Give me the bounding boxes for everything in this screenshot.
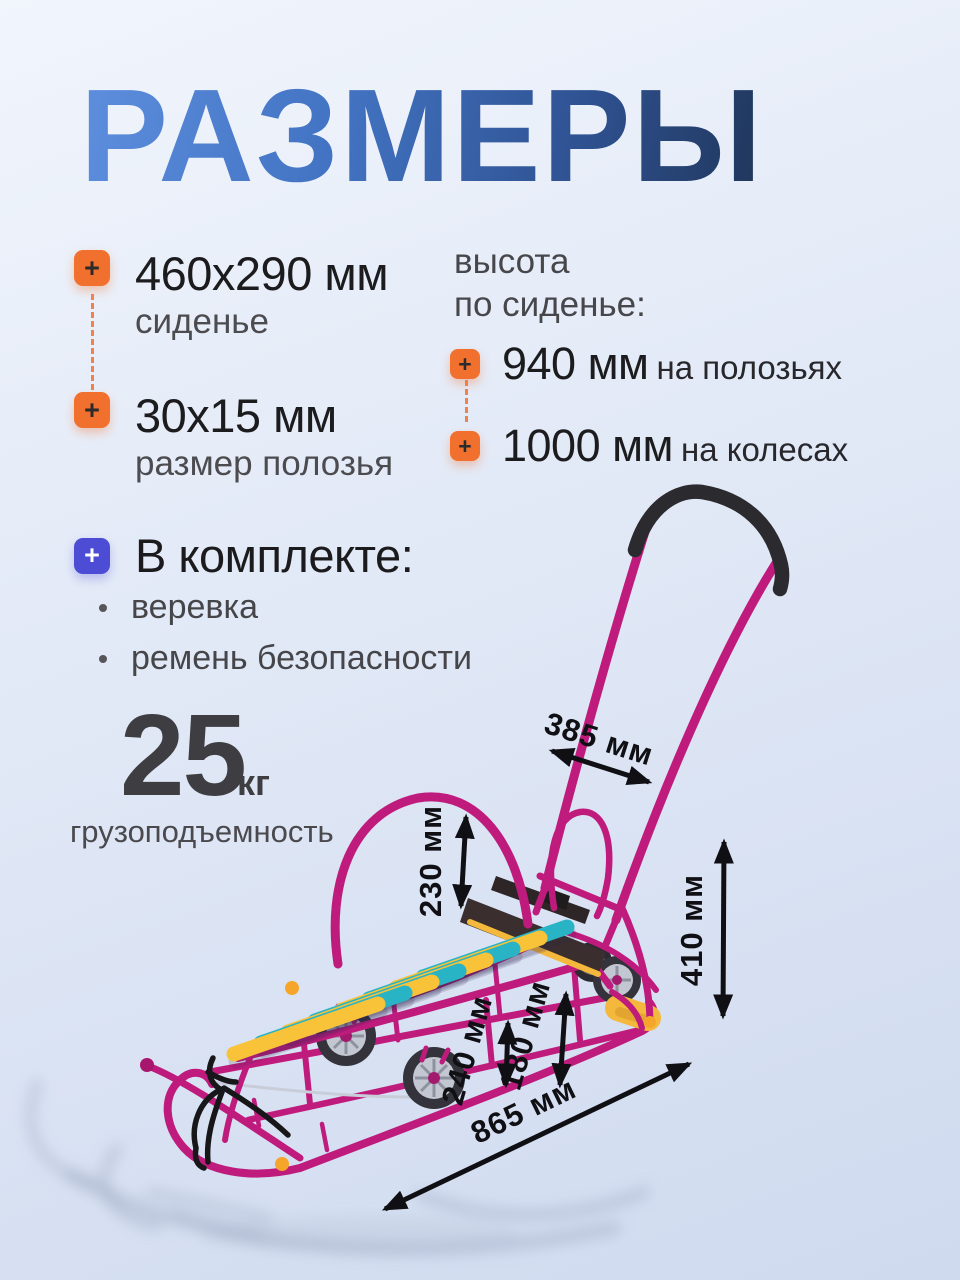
dim-label-handle-width: 385 мм <box>540 705 658 772</box>
plus-icon: + <box>74 392 110 428</box>
dim-label-rear-height: 410 мм <box>674 874 709 986</box>
height-runners-suffix: на полозьях <box>656 349 842 386</box>
dim-arrow-rear-height <box>723 842 724 1016</box>
capacity-value: 25 <box>120 690 245 820</box>
included-list: веревка ремень безопасности <box>99 588 472 690</box>
plus-icon: + <box>450 431 480 461</box>
dim-label-backrest-height: 230 мм <box>413 805 448 917</box>
handle-grip <box>635 492 782 589</box>
plus-icon: + <box>450 349 480 379</box>
included-section: + В комплекте: <box>74 528 413 583</box>
seat-height-heading-line2: по сиденье: <box>454 284 646 327</box>
seat-height-heading-line1: высота <box>454 241 646 284</box>
infographic-page: 385 мм 230 мм 410 мм 240 мм 180 мм 865 м… <box>0 0 960 1280</box>
spec-height-wheels: + 1000 ммна колесах <box>450 420 848 472</box>
seat-size-value: 460x290 мм <box>135 250 388 297</box>
list-item: ремень безопасности <box>99 639 472 678</box>
plus-icon: + <box>74 250 110 286</box>
runner-size-value: 30x15 мм <box>135 392 393 439</box>
plus-icon: + <box>74 538 110 574</box>
capacity-value-row: 25кг <box>120 700 334 810</box>
seat-size-label: сиденье <box>135 302 388 342</box>
capacity-section: 25кг грузоподъемность <box>70 700 334 850</box>
spec-seat-size: + 460x290 мм сиденье <box>74 250 388 342</box>
capacity-label: грузоподъемность <box>70 814 334 850</box>
included-item-belt: ремень безопасности <box>131 639 472 678</box>
bullet-dot-icon <box>99 655 107 663</box>
page-title: РАЗМЕРЫ <box>80 70 764 202</box>
bullet-dot-icon <box>99 604 107 612</box>
dim-arrow-backrest-height <box>461 817 466 906</box>
list-item: веревка <box>99 588 472 627</box>
seat-height-heading: высота по сиденье: <box>454 241 646 326</box>
included-heading: В комплекте: <box>135 528 413 583</box>
dashed-connector-left <box>91 294 94 390</box>
height-wheels-value: 1000 мм <box>502 420 673 471</box>
height-runners-value: 940 мм <box>502 338 648 389</box>
spec-runner-size: + 30x15 мм размер полозья <box>74 392 393 484</box>
capacity-unit: кг <box>237 762 270 803</box>
dashed-connector-right <box>465 380 468 422</box>
spec-height-runners: + 940 ммна полозьях <box>450 338 842 390</box>
height-wheels-suffix: на колесах <box>681 431 848 468</box>
included-item-rope: веревка <box>131 588 258 627</box>
runner-size-label: размер полозья <box>135 444 393 484</box>
